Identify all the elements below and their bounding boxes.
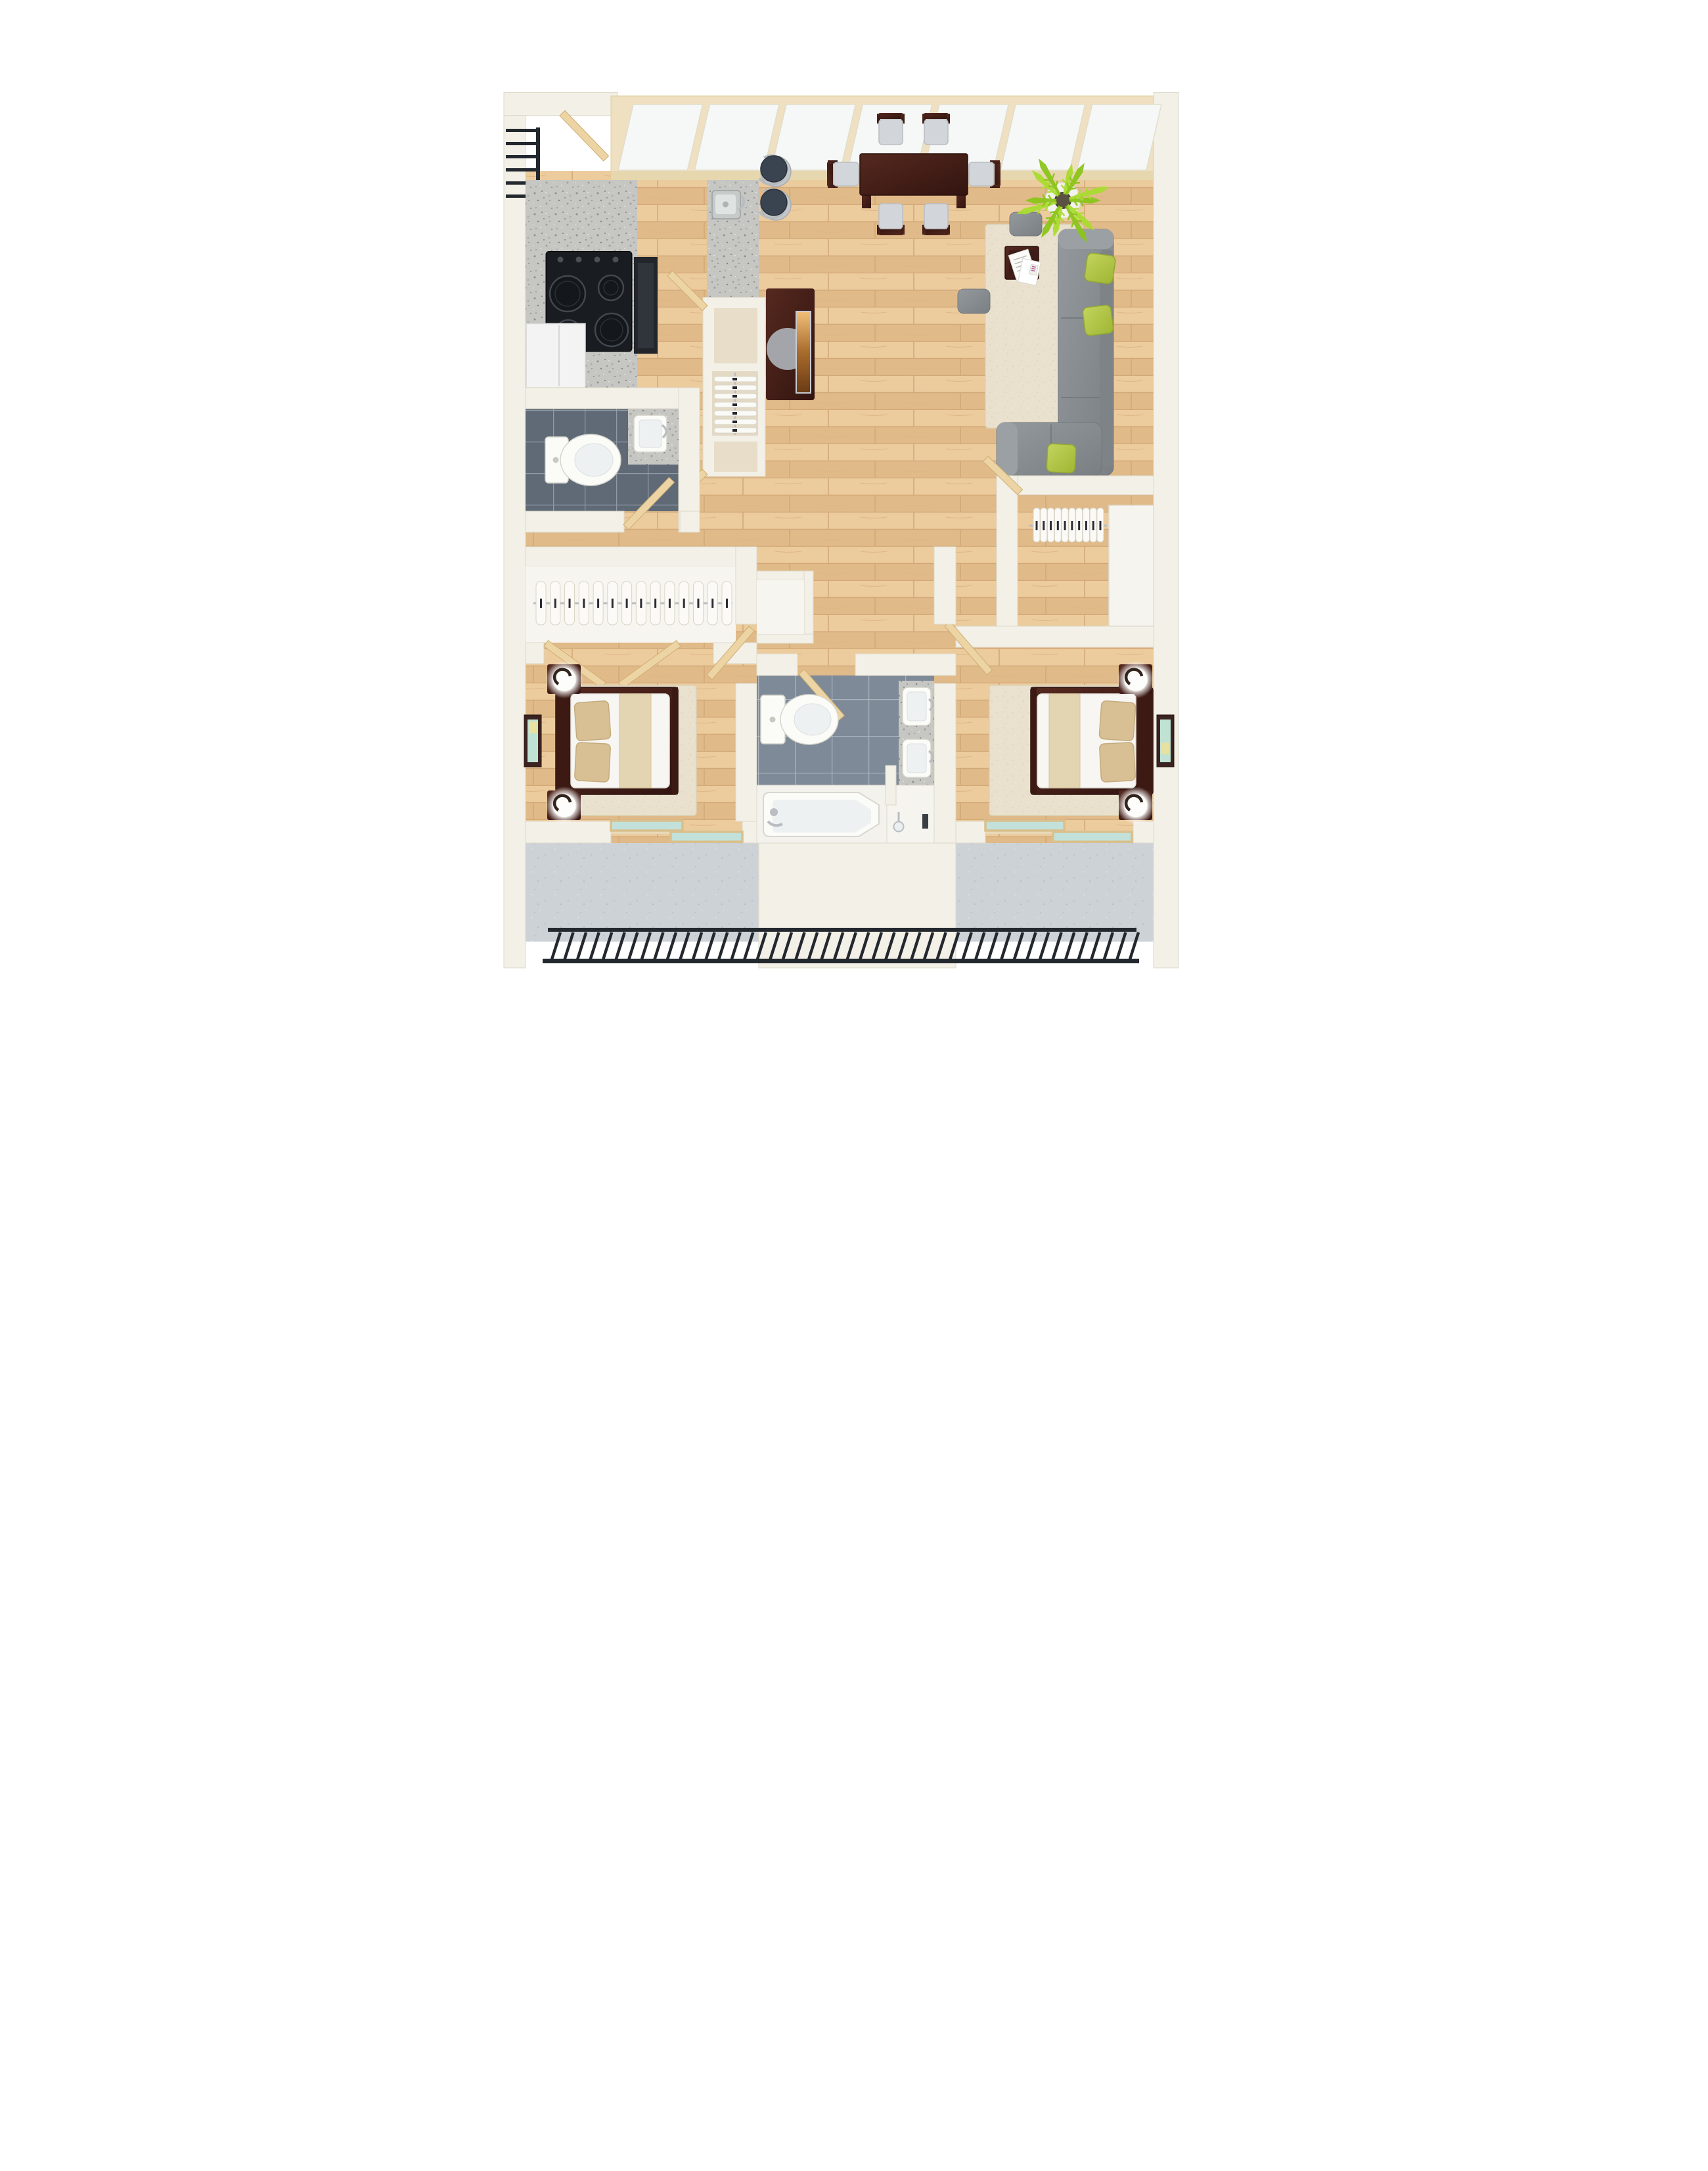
nightstand	[1117, 660, 1155, 698]
pillow	[1099, 700, 1136, 741]
footboard	[1031, 687, 1037, 794]
window-pane	[618, 104, 702, 170]
half-bath-vanity	[628, 409, 679, 465]
dining-chair	[922, 113, 950, 145]
hanger-hook	[583, 599, 585, 608]
ottoman	[958, 289, 990, 313]
cabinet-open-shelf	[714, 308, 757, 363]
green-pillow	[1083, 305, 1114, 336]
bar-stool	[759, 189, 791, 220]
hanger-hook	[1043, 521, 1045, 530]
hanger-hook	[612, 599, 614, 608]
chair-cushion	[969, 162, 994, 186]
cooktop-knob	[576, 257, 582, 263]
framed-art	[524, 715, 541, 767]
window-pane	[1077, 104, 1161, 170]
wall-left	[504, 93, 526, 969]
hanger-hook	[640, 599, 642, 608]
stool-seat	[761, 156, 787, 182]
entry-railing-bar	[506, 155, 537, 158]
bedroom1-bed	[556, 687, 678, 794]
wall-right	[1154, 93, 1179, 969]
nightstand	[545, 787, 583, 825]
chair-cushion	[924, 120, 948, 145]
window-pane	[1000, 104, 1085, 170]
nightstand	[545, 660, 583, 698]
entry-railing-bar	[506, 142, 537, 145]
coffee-table	[1005, 246, 1041, 286]
stool-seat	[761, 189, 787, 216]
chair-back	[827, 161, 833, 187]
balcony-floor-left	[526, 843, 759, 942]
cooktop-knob	[595, 257, 600, 263]
hanger-hook	[1064, 521, 1066, 530]
bathtub	[757, 785, 887, 843]
chair-cushion	[879, 204, 903, 229]
hanger-hook	[1100, 521, 1102, 530]
pillow	[575, 743, 611, 783]
hanger-hook	[654, 599, 656, 608]
cabinet-open-shelf-2	[714, 442, 757, 472]
hanger-hook	[1036, 521, 1038, 530]
oven-door	[638, 263, 654, 348]
pillow	[574, 700, 611, 741]
dining-chair	[877, 204, 905, 235]
half-bath-toilet	[545, 434, 621, 486]
bed-runner	[1049, 694, 1080, 788]
walkin-hangers	[1033, 508, 1104, 542]
hanger-hook	[669, 599, 671, 608]
chair-cushion	[879, 120, 903, 145]
ottoman	[1010, 212, 1042, 236]
balcony-railing-bottom-rail	[543, 959, 1139, 963]
wall-south-1	[526, 821, 611, 843]
plate-clip	[732, 378, 737, 380]
plate-clip	[732, 395, 737, 398]
cooktop-knob	[613, 257, 619, 263]
walkin-left-wall	[997, 476, 1018, 627]
chair-back	[923, 113, 949, 119]
kitchen-sink	[712, 191, 744, 219]
hanger-hook	[726, 599, 728, 608]
chair-back	[995, 161, 1000, 187]
floorplan-stage: 2 Bedroom 2 Bath Apartment - 3D Top-Down…	[427, 0, 1281, 1085]
hanger-hook	[1078, 521, 1080, 530]
chair-back	[878, 229, 904, 235]
headboard	[1138, 687, 1153, 794]
hanger-hook	[1071, 521, 1073, 530]
hanger-hook	[569, 599, 571, 608]
headboard	[556, 687, 571, 794]
double-vanity	[899, 681, 934, 790]
shower-head	[894, 822, 904, 832]
bed-runner	[619, 694, 651, 788]
dining-chair	[969, 160, 1000, 188]
hanger-hook	[711, 599, 713, 608]
entry-railing-bar	[506, 129, 537, 132]
dining-chair	[827, 160, 859, 188]
plate-clip	[732, 403, 737, 406]
plate-clip	[732, 421, 737, 423]
plate-clip	[732, 412, 737, 415]
entry-railing-bar	[506, 168, 537, 171]
tv-console	[766, 288, 815, 400]
balcony-floor-right	[956, 843, 1154, 942]
hanger-hook	[697, 599, 699, 608]
linen-nook	[757, 571, 813, 643]
dining-chair	[877, 113, 905, 145]
plant-center	[1056, 194, 1069, 207]
green-pillow	[1046, 444, 1076, 473]
hanger-hook	[626, 599, 628, 608]
bathroom-toilet	[761, 695, 838, 744]
footboard	[672, 687, 678, 794]
chair-back	[923, 229, 949, 235]
bedroom-2	[989, 660, 1174, 825]
cooktop-knob	[558, 257, 564, 263]
framed-art	[1157, 715, 1174, 767]
green-pillow	[1084, 252, 1116, 285]
nightstand	[1117, 787, 1155, 825]
wall-top-entry	[504, 93, 618, 116]
hanger-hook	[597, 599, 599, 608]
hanger-hook	[683, 599, 685, 608]
chair-cushion	[924, 204, 948, 229]
chair-back	[878, 113, 904, 119]
plate-clip	[732, 429, 737, 432]
bedroom2-bed	[1031, 687, 1153, 794]
walkin-bottom-wall	[956, 626, 1154, 647]
hanger-hook	[1085, 521, 1087, 530]
tv-screen	[796, 311, 811, 393]
pillow	[1100, 743, 1136, 783]
shower-control	[922, 814, 928, 829]
walkin-shelf	[1109, 505, 1154, 626]
hanger-hook	[554, 599, 556, 608]
half-bath	[526, 388, 700, 532]
hanger-hook	[540, 599, 542, 608]
hanger-hook	[1092, 521, 1094, 530]
floorplan-render: 2 Bedroom 2 Bath Apartment - 3D Top-Down…	[427, 0, 1281, 1085]
hanger-hook	[1050, 521, 1052, 530]
fridge	[526, 324, 585, 388]
bar-stool	[759, 156, 791, 187]
dining-table	[860, 154, 968, 195]
burner	[598, 275, 623, 300]
dining-chair	[922, 204, 950, 235]
plate-clip	[732, 386, 737, 389]
balcony-railing-top-rail	[548, 928, 1136, 932]
hanger-hook	[1057, 521, 1059, 530]
chair-cushion	[834, 162, 859, 186]
